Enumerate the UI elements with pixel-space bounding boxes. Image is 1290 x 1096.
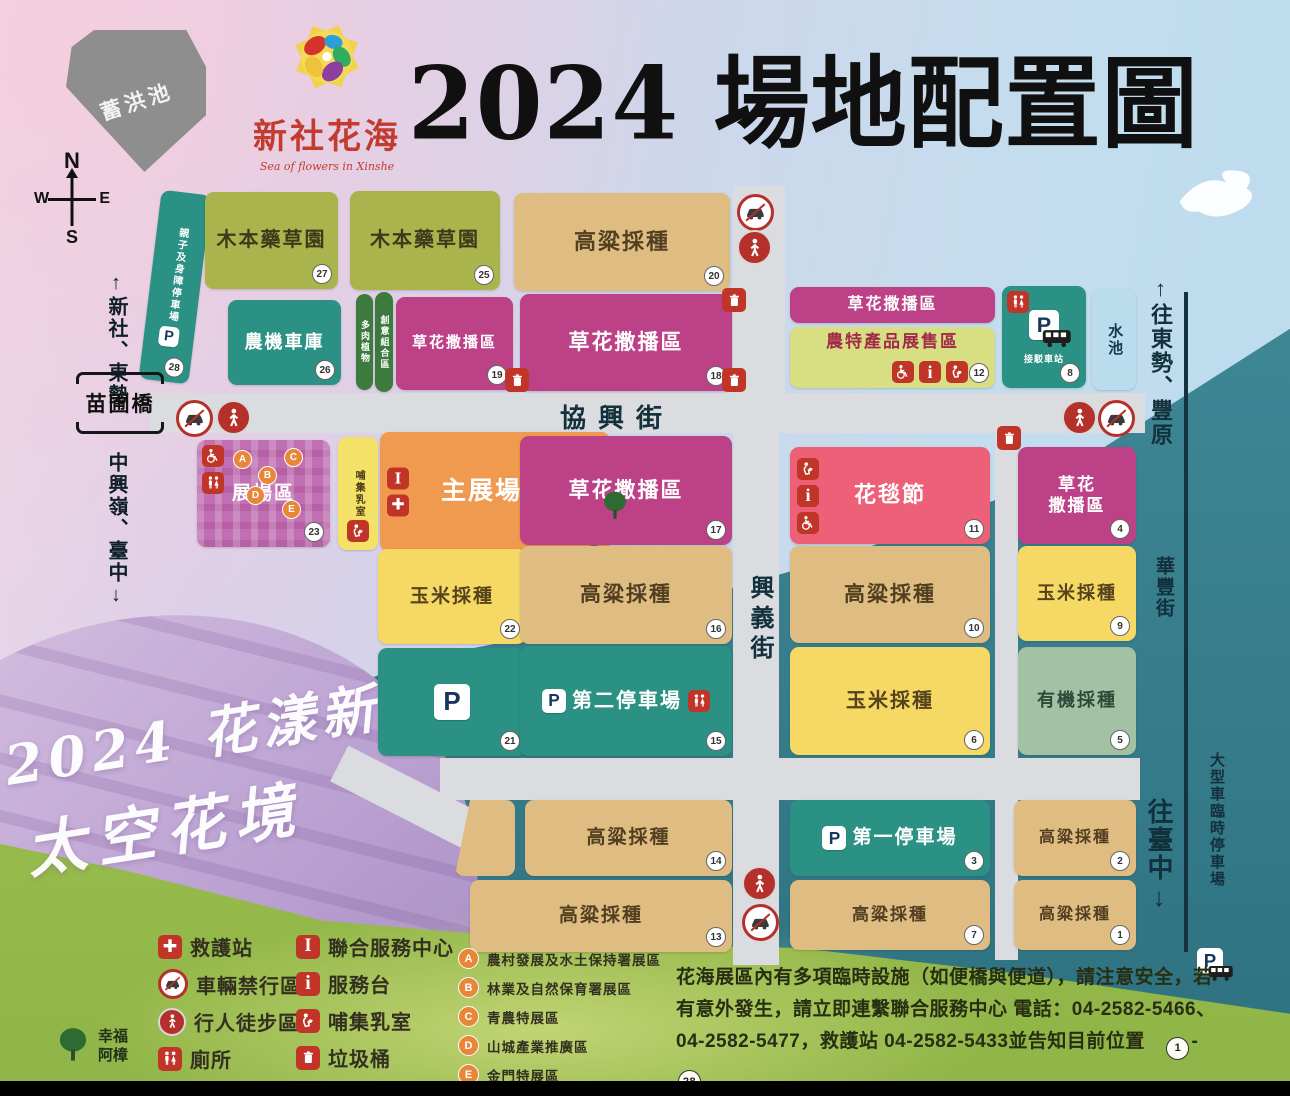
legend-label: 廁所 [190, 1044, 232, 1073]
pedestrian-icon [216, 400, 251, 435]
legend-item: 廁所 [158, 1044, 301, 1073]
trash-bin-icon [505, 368, 529, 392]
zone-number-badge: 2 [1110, 851, 1130, 871]
restroom-icon [158, 1047, 182, 1071]
info-desk-icon: i [797, 485, 819, 507]
exhibit-letter-badge: B [258, 466, 277, 485]
zone-s1: 多肉植物 [356, 294, 373, 390]
zone-number-badge: 7 [964, 925, 984, 945]
wheelchair-icon [202, 445, 224, 467]
legend-column-1: ✚救護站車輛禁行區行人徒步區廁所輪椅借用處 [158, 932, 301, 1096]
pedestrian-icon [742, 866, 777, 901]
legend-label: 救護站 [190, 932, 253, 961]
zone-s2: 創意組合區 [375, 292, 393, 392]
zone-10: 高粱採種10 [790, 546, 990, 643]
zone-number-badge: 5 [1110, 730, 1130, 750]
exhibit-letter-badge: D [458, 1035, 479, 1056]
legend-label: 青農特展區 [487, 1007, 560, 1027]
legend-item: i服務台 [296, 969, 454, 998]
zone-number-badge: 9 [1110, 616, 1130, 636]
direction-taichung: 往臺中↓ [1141, 798, 1178, 914]
trash-bin-icon [296, 1046, 320, 1070]
direction-zhongxingling-taichung: 中興嶺、臺中↓ [102, 452, 131, 608]
zone-number-badge: 17 [706, 520, 726, 540]
road-east-lane [995, 432, 1018, 960]
no-vehicles-icon [158, 969, 188, 999]
tree-icon [55, 1026, 91, 1062]
restroom-icon [1007, 291, 1029, 313]
exhibit-letter-badge: E [282, 500, 301, 519]
logo-chinese-text: 新社花海 [232, 109, 422, 158]
zone-4: 草花撒播區4 [1018, 447, 1136, 544]
zone-27: 木本藥草園27 [205, 192, 338, 289]
zone-number-badge: 13 [706, 927, 726, 947]
zone-number-badge: 16 [706, 619, 726, 639]
exhibit-letter-badge: C [458, 1006, 479, 1027]
street-label-xiexing: 協興街 [560, 398, 674, 435]
pedestrian-icon [1062, 400, 1097, 435]
page-title: 2024 場地配置圖 [408, 23, 1218, 168]
zone-pond2: 水池 [1092, 289, 1136, 390]
exhibit-letter-badge: C [284, 448, 303, 467]
zone-12: i農特產品展售區12 [790, 327, 995, 388]
zone-15: P第二停車場15 [520, 646, 732, 756]
legend-label: 聯合服務中心 [328, 932, 454, 961]
zone-2: 高粱採種2 [1014, 800, 1136, 876]
legend-label: 車輛禁行區 [196, 970, 301, 999]
bottom-bar [0, 1081, 1290, 1096]
exhibit-letter-badge: A [233, 450, 252, 469]
legend-label: 農村發展及水土保持署展區 [487, 949, 661, 969]
restroom-icon [202, 472, 224, 494]
zone-7: 高粱採種7 [790, 880, 990, 950]
legend-item: D山城產業推廣區 [458, 1035, 661, 1056]
legend-item: C青農特展區 [458, 1006, 661, 1027]
zone-16: 高粱採種16 [520, 546, 732, 644]
nursing-room-icon [946, 361, 968, 383]
legend-tree: 幸福阿樟 [55, 1026, 128, 1067]
trash-bin-icon [722, 288, 746, 312]
exhibit-letter-badge: B [458, 977, 479, 998]
trash-bin-icon [722, 368, 746, 392]
legend-item: ✚救護站 [158, 932, 301, 961]
street-label-xingyi: 興義街 [742, 575, 777, 665]
zone-number-badge: 26 [315, 360, 335, 380]
zone-18: 草花撒播區18 [520, 294, 732, 391]
wheelchair-icon [892, 361, 914, 383]
logo: 新社花海 Sea of flowers in Xinshe [232, 18, 422, 173]
shuttle-parking-icon: P [1029, 310, 1059, 340]
zone-number-badge: 14 [706, 851, 726, 871]
site-map-poster: 新社花海 Sea of flowers in Xinshe 2024 場地配置圖… [0, 0, 1290, 1096]
pedestrian-icon [158, 1008, 186, 1036]
parking-icon: P [158, 325, 180, 347]
compass-east: E [99, 190, 110, 208]
legend-label: 哺集乳室 [328, 1006, 412, 1035]
zone-number-badge: 25 [474, 265, 494, 285]
trash-bin-icon [997, 426, 1021, 450]
legend-column-2: I聯合服務中心i服務台哺集乳室垃圾桶 [296, 932, 454, 1080]
zone-number-badge: 28 [163, 356, 185, 378]
compass-south: S [66, 227, 78, 248]
legend-item: 車輛禁行區 [158, 969, 301, 999]
zone-1: 高粱採種1 [1014, 880, 1136, 950]
legend-label: 服務台 [328, 969, 391, 998]
zone-22: 玉米採種22 [378, 549, 526, 644]
tree-icon [55, 1026, 91, 1067]
pedestrian-icon [737, 230, 772, 265]
zone-11: i花毯節11 [790, 447, 990, 544]
info-desk-icon: i [919, 361, 941, 383]
legend-label: 行人徒步區 [194, 1007, 299, 1036]
info-desk-icon: i [296, 972, 320, 996]
dove-icon [1172, 165, 1260, 223]
zone-number-badge: 10 [964, 618, 984, 638]
exhibit-letter-badge: D [246, 486, 265, 505]
zone-26: 農機車庫26 [228, 300, 341, 385]
legend-item: I聯合服務中心 [296, 932, 454, 961]
zone-25: 木本藥草園25 [350, 191, 500, 290]
service-center-icon: I [296, 935, 320, 959]
zone-number-badge: 4 [1110, 519, 1130, 539]
zone-number-badge: 6 [964, 730, 984, 750]
no-vehicles-icon [737, 194, 774, 231]
legend-label: 垃圾桶 [328, 1043, 391, 1072]
legend-item: 垃圾桶 [296, 1043, 454, 1072]
tree-icon [600, 490, 630, 520]
flower-logo-icon [281, 18, 373, 110]
parking-icon: P [822, 826, 846, 850]
exhibit-letter-badge: A [458, 948, 479, 969]
wheelchair-icon [797, 512, 819, 534]
legend-label: 山城產業推廣區 [487, 1036, 589, 1056]
zone-number-badge: 3 [964, 851, 984, 871]
restroom-icon [688, 690, 710, 712]
pond-label: 蓄洪池 [96, 75, 177, 127]
direction-dongshi-fengyuan: ↑往東勢、豐原 [1144, 276, 1176, 447]
nursing-room-icon [347, 520, 369, 542]
street-label-huafeng: 華豐街 [1150, 556, 1177, 619]
zone-21: P21 [378, 648, 526, 756]
zone-3: P第一停車場3 [790, 800, 990, 876]
legend-label: 林業及自然保育署展區 [487, 978, 632, 998]
zone-number-badge: 22 [500, 619, 520, 639]
compass: N S W E [34, 148, 110, 248]
legend-column-3: A農村發展及水土保持署展區B林業及自然保育署展區C青農特展區D山城產業推廣區E金… [458, 948, 661, 1093]
logo-english-text: Sea of flowers in Xinshe [232, 160, 422, 173]
zone-20: 高粱採種20 [514, 193, 730, 291]
road-south [440, 758, 1140, 800]
range-start-badge: 1 [1166, 1037, 1189, 1060]
zone-number-badge: 11 [964, 519, 984, 539]
nursing-room-icon [296, 1009, 320, 1033]
zone-number-badge: 15 [706, 731, 726, 751]
no-vehicles-icon [176, 400, 213, 437]
service-center-icon: I [387, 467, 409, 489]
zone-number-badge: 27 [312, 264, 332, 284]
zone-number-badge: 19 [487, 365, 507, 385]
zone-number-badge: 20 [704, 266, 724, 286]
legend-item: 哺集乳室 [296, 1006, 454, 1035]
zone-b1: 草花撒播區 [790, 287, 995, 323]
huafeng-street-line [1184, 292, 1188, 952]
zone-number-badge: 8 [1060, 363, 1080, 383]
zone-number-badge: 23 [304, 522, 324, 542]
bridge-miaopu: 苗圃橋 [76, 372, 164, 434]
no-vehicles-icon [1098, 400, 1135, 437]
parking-icon: P [434, 684, 470, 720]
bridge-label: 苗圃橋 [76, 384, 164, 422]
nursing-room-icon [797, 458, 819, 480]
legend-item: A農村發展及水土保持署展區 [458, 948, 661, 969]
zone-19: 草花撒播區19 [396, 297, 513, 390]
zone-13: 高粱採種13 [470, 880, 732, 952]
legend-item: B林業及自然保育署展區 [458, 977, 661, 998]
compass-west: W [34, 190, 49, 208]
notice-text: 花海展區內有多項臨時設施（如便橋與便道），請注意安全，若有意外發生，請立即連繫聯… [676, 962, 1216, 1093]
zone-number-badge: 1 [1110, 925, 1130, 945]
legend-tree-label: 幸福阿樟 [98, 1028, 128, 1066]
zone-8: P接駁車站8 [1002, 286, 1086, 388]
first-aid-icon: ✚ [158, 935, 182, 959]
zone-6: 玉米採種6 [790, 647, 990, 755]
parking-icon: P [542, 689, 566, 713]
zone-number-badge: 21 [500, 731, 520, 751]
zone-5: 有機採種5 [1018, 647, 1136, 755]
zone-number-badge: 12 [969, 363, 989, 383]
first-aid-icon: ✚ [387, 494, 409, 516]
no-vehicles-icon [742, 904, 779, 941]
zone-s3: 哺集乳室 [338, 437, 378, 550]
legend-item: 行人徒步區 [158, 1007, 301, 1036]
zone-14: 高粱採種14 [525, 800, 732, 876]
big-vehicle-parking-label: 大型車臨時停車場 [1206, 752, 1227, 888]
zone-9: 玉米採種9 [1018, 546, 1136, 641]
